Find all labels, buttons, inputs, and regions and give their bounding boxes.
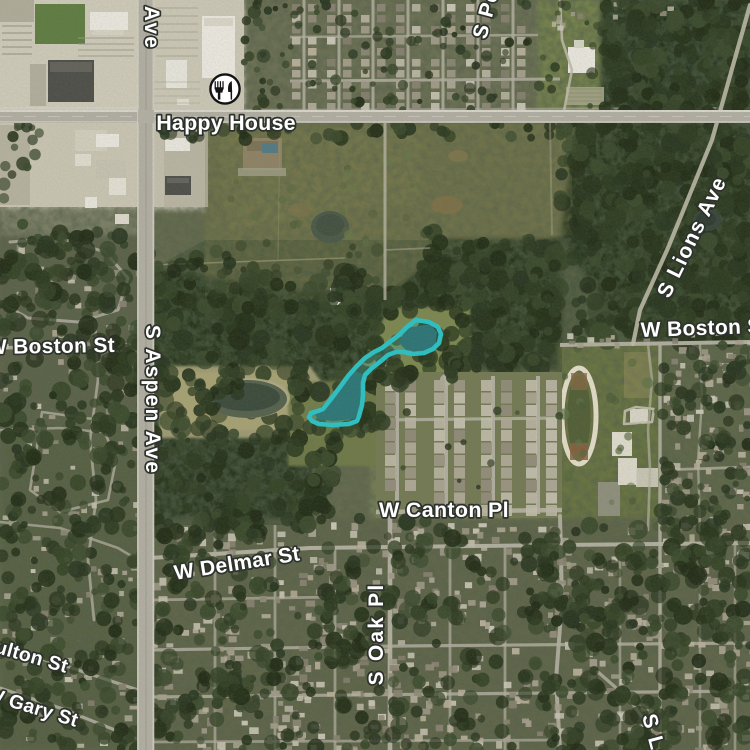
svg-text:W Boston St: W Boston St (640, 315, 750, 342)
svg-text:Ave: Ave (140, 6, 163, 50)
svg-text:W Boston St: W Boston St (0, 334, 115, 359)
svg-text:S Aspen Ave: S Aspen Ave (141, 325, 164, 475)
svg-text:S Oak Pl: S Oak Pl (365, 583, 388, 686)
svg-text:W Canton Pl: W Canton Pl (379, 498, 509, 522)
svg-text:Happy House: Happy House (156, 111, 296, 135)
